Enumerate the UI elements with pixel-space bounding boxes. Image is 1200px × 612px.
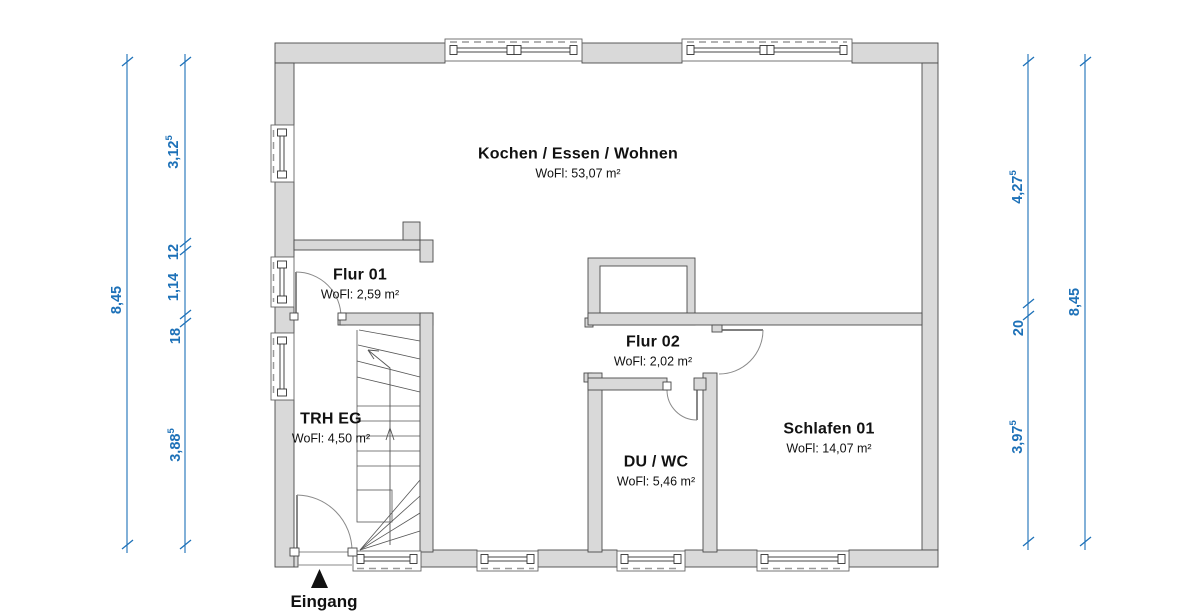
- entrance-arrow-icon: [311, 569, 328, 588]
- dimension-label-left-2: 12: [164, 244, 182, 260]
- dimension-value: 3,88: [168, 434, 184, 462]
- room-name: Kochen / Essen / Wohnen: [478, 146, 678, 164]
- dimension-label-right-3: 3,975: [1008, 420, 1026, 454]
- room-area: WoFl: 2,59 m²: [321, 288, 399, 302]
- door-duwc: [663, 382, 697, 420]
- dimension-sup: 5: [164, 135, 175, 140]
- dimension-value: 1,14: [166, 273, 182, 301]
- room-label-flur01: Flur 01 WoFl: 2,59 m²: [321, 267, 399, 302]
- floorplan-page: { "title": "Grundriss EG", "rooms": [ {"…: [0, 0, 1200, 600]
- room-area: WoFl: 2,02 m²: [614, 355, 692, 369]
- dimension-label-right-total: 8,45: [1065, 288, 1083, 316]
- room-label-du-wc: DU / WC WoFl: 5,46 m²: [617, 454, 695, 489]
- room-area: WoFl: 4,50 m²: [292, 432, 370, 446]
- dimension-label-left-4: 18: [166, 328, 184, 344]
- room-label-kochen: Kochen / Essen / Wohnen WoFl: 53,07 m²: [478, 146, 678, 181]
- dimension-label-left-total: 8,45: [107, 286, 125, 314]
- windows: [271, 39, 852, 571]
- entrance-label: Eingang: [290, 592, 357, 612]
- window-bottom-schlafen: [757, 551, 849, 571]
- dimension-label-left-3: 1,14: [164, 273, 182, 301]
- window-bottom-stair: [353, 551, 421, 571]
- dimension-value: 8,45: [109, 286, 125, 314]
- window-bottom-kochen: [477, 551, 538, 571]
- room-area: WoFl: 14,07 m²: [783, 442, 874, 456]
- dimension-value: 3,12: [166, 141, 182, 169]
- room-name: DU / WC: [617, 454, 695, 472]
- door-entrance: [290, 495, 357, 565]
- window-left-2: [271, 257, 294, 307]
- dimension-value: 8,45: [1067, 288, 1083, 316]
- room-area: WoFl: 53,07 m²: [478, 167, 678, 181]
- dimension-label-left-1: 3,125: [164, 135, 182, 169]
- room-name: Flur 02: [614, 334, 692, 352]
- dimension-sup: 5: [1008, 420, 1019, 425]
- room-label-trh-eg: TRH EG WoFl: 4,50 m²: [292, 411, 370, 446]
- window-left-3: [271, 333, 294, 400]
- room-area: WoFl: 5,46 m²: [617, 475, 695, 489]
- room-label-schlafen: Schlafen 01 WoFl: 14,07 m²: [783, 421, 874, 456]
- dimension-label-left-5: 3,885: [166, 428, 184, 462]
- dimension-label-right-2: 20: [1009, 320, 1027, 336]
- dimension-value: 12: [166, 244, 182, 260]
- dimension-lines-left: [122, 54, 191, 553]
- window-bottom-duwc: [617, 551, 685, 571]
- dimension-value: 20: [1011, 320, 1027, 336]
- dimension-value: 3,97: [1010, 426, 1026, 454]
- dimension-sup: 5: [166, 428, 177, 433]
- dimension-sup: 5: [1008, 170, 1019, 175]
- door-schlafen: [719, 330, 763, 374]
- dimension-label-right-1: 4,275: [1008, 170, 1026, 204]
- window-top-1: [445, 39, 582, 61]
- dimension-value: 18: [168, 328, 184, 344]
- room-label-flur02: Flur 02 WoFl: 2,02 m²: [614, 334, 692, 369]
- dimension-value: 4,27: [1010, 176, 1026, 204]
- room-name: Flur 01: [321, 267, 399, 285]
- window-left-1: [271, 125, 294, 182]
- room-name: Schlafen 01: [783, 421, 874, 439]
- window-top-2: [682, 39, 852, 61]
- room-name: TRH EG: [292, 411, 370, 429]
